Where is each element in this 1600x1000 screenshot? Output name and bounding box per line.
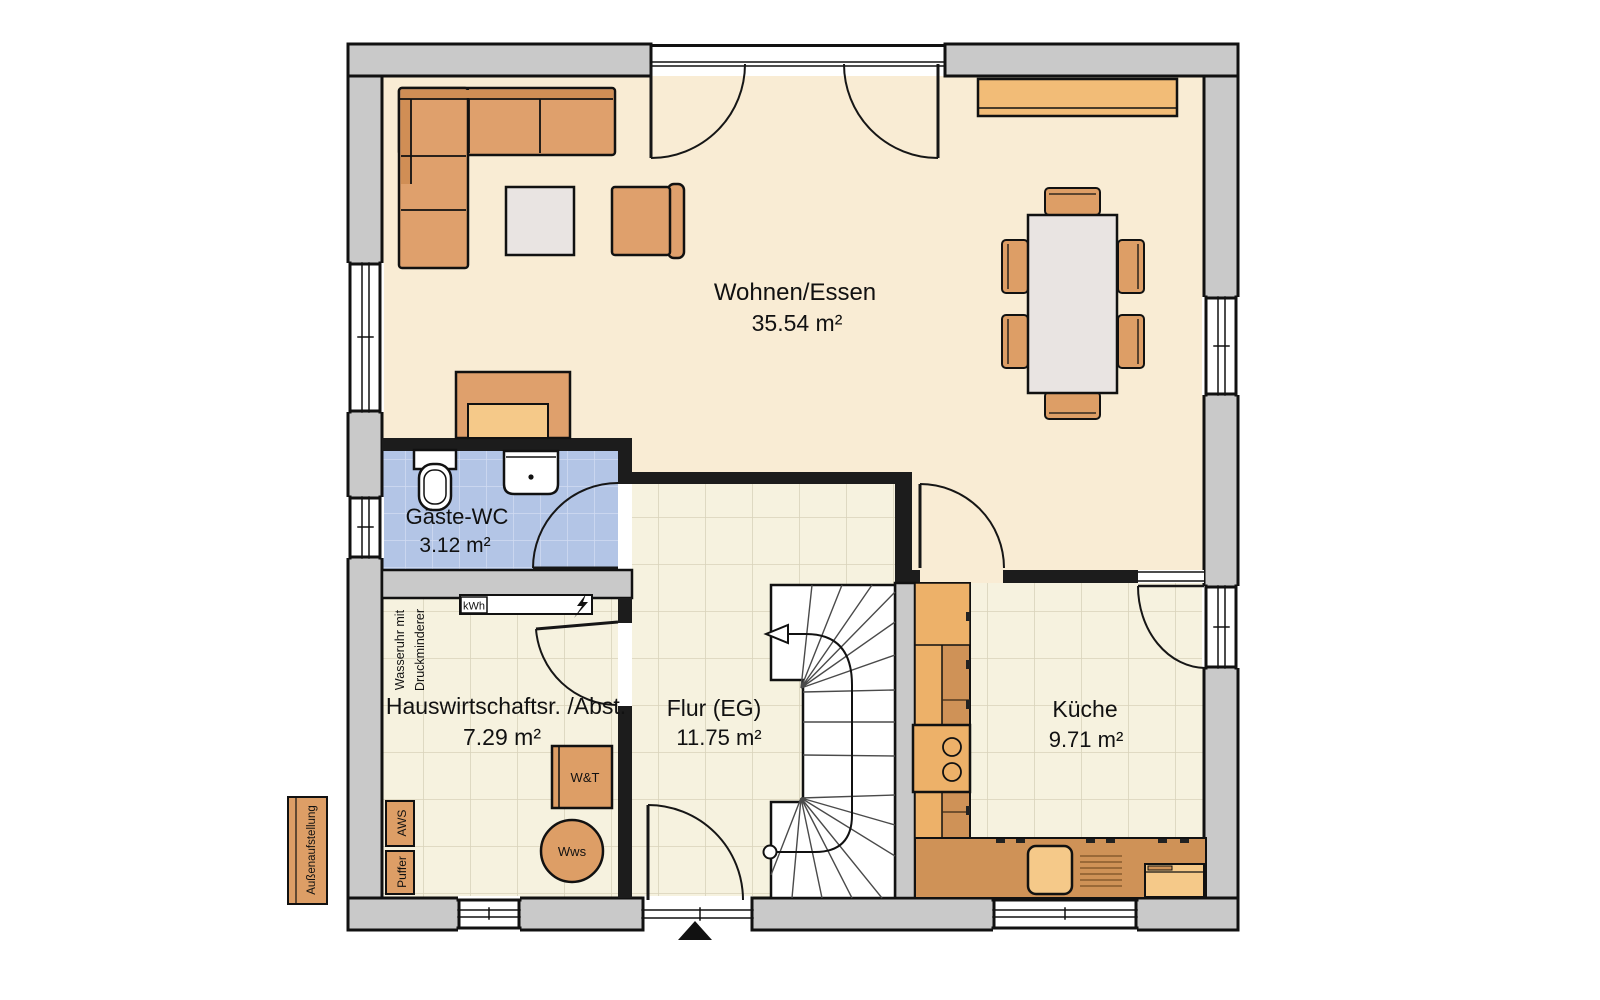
window-hwr-bottom <box>458 896 520 932</box>
dining-chair <box>1045 188 1100 215</box>
window-kitchen-bottom <box>993 896 1137 932</box>
kitchen-counter-bottom <box>915 838 1206 898</box>
hot-water-tank-label: Wws <box>558 844 587 859</box>
floor-kitchen-doorway <box>920 570 1003 583</box>
wall-wc-flur <box>618 451 632 484</box>
hot-water-tank: Wws <box>541 820 603 882</box>
terrace-door-opening <box>651 46 945 77</box>
washbasin <box>504 451 558 494</box>
wall-hwr-flur-lower <box>618 706 632 898</box>
buffer-tank: Puffer <box>386 851 414 894</box>
dining-chair <box>1002 240 1028 293</box>
wall-hwr-flur-upper <box>618 598 632 623</box>
label-kueche-area: 9.71 m² <box>1049 727 1124 752</box>
label-hwr-area: 7.29 m² <box>463 724 541 750</box>
svg-text:Wasseruhr mit: Wasseruhr mit <box>393 609 407 690</box>
dining-chair <box>1118 315 1144 368</box>
window-living-left <box>346 263 384 412</box>
outdoor-unit-label: Außenaufstellung <box>306 805 318 895</box>
buffer-label: Puffer <box>395 856 409 888</box>
kitchen-appliance <box>1145 864 1204 897</box>
wall-kueche-top-a <box>912 570 920 583</box>
label-wohnen-essen: Wohnen/Essen <box>714 279 876 306</box>
cooktop <box>913 725 970 792</box>
dining-table <box>1028 215 1117 393</box>
washer-dryer-label: W&T <box>571 770 600 785</box>
coffee-table <box>506 187 574 255</box>
kwh-label: kWh <box>463 601 485 613</box>
floorplan-canvas: kWh W&T Wws AWS Puffer Wasseruhr mit Dru… <box>0 0 1600 1000</box>
kitchen-sink <box>1028 846 1072 894</box>
sideboard <box>978 79 1177 116</box>
label-gaeste-wc: Gäste-WC <box>406 504 509 529</box>
label-gaeste-wc-area: 3.12 m² <box>419 534 490 557</box>
tv-board <box>456 372 570 438</box>
stairs-walkline-start <box>764 846 777 859</box>
wall-top-right <box>945 44 1238 76</box>
window-wc-left <box>346 497 384 558</box>
wall-right <box>1204 44 1238 930</box>
label-flur: Flur (EG) <box>667 695 762 721</box>
window-dining-right <box>1202 297 1240 395</box>
aws-label: AWS <box>395 810 409 837</box>
window-door-kitchen-top <box>1138 570 1204 583</box>
dining-chair <box>1045 392 1100 419</box>
wall-left <box>348 44 382 930</box>
label-flur-area: 11.75 m² <box>676 725 761 750</box>
svg-text:Druckminderer: Druckminderer <box>413 609 427 691</box>
window-kitchen-right <box>1202 586 1240 668</box>
aws-unit: AWS <box>386 801 414 846</box>
armchair <box>612 184 684 258</box>
wall-top-left <box>348 44 651 76</box>
toilet <box>414 450 456 510</box>
wall-kueche-top-b <box>1003 570 1138 583</box>
label-wohnen-essen-area: 35.54 m² <box>752 310 843 336</box>
meter-shelf: kWh <box>460 594 592 618</box>
label-hwr: Hauswirtschaftsr. /Abst. <box>386 693 626 719</box>
wall-flur-kueche-connector <box>895 472 912 583</box>
washer-dryer: W&T <box>552 746 612 808</box>
floorplan-svg: kWh W&T Wws AWS Puffer Wasseruhr mit Dru… <box>0 0 1600 1000</box>
wall-flur-wohnen <box>632 472 895 484</box>
outdoor-unit: Außenaufstellung <box>288 797 327 904</box>
dining-chair <box>1118 240 1144 293</box>
dining-chair <box>1002 315 1028 368</box>
label-kueche: Küche <box>1052 696 1117 722</box>
wall-wc-hwr <box>382 570 632 598</box>
